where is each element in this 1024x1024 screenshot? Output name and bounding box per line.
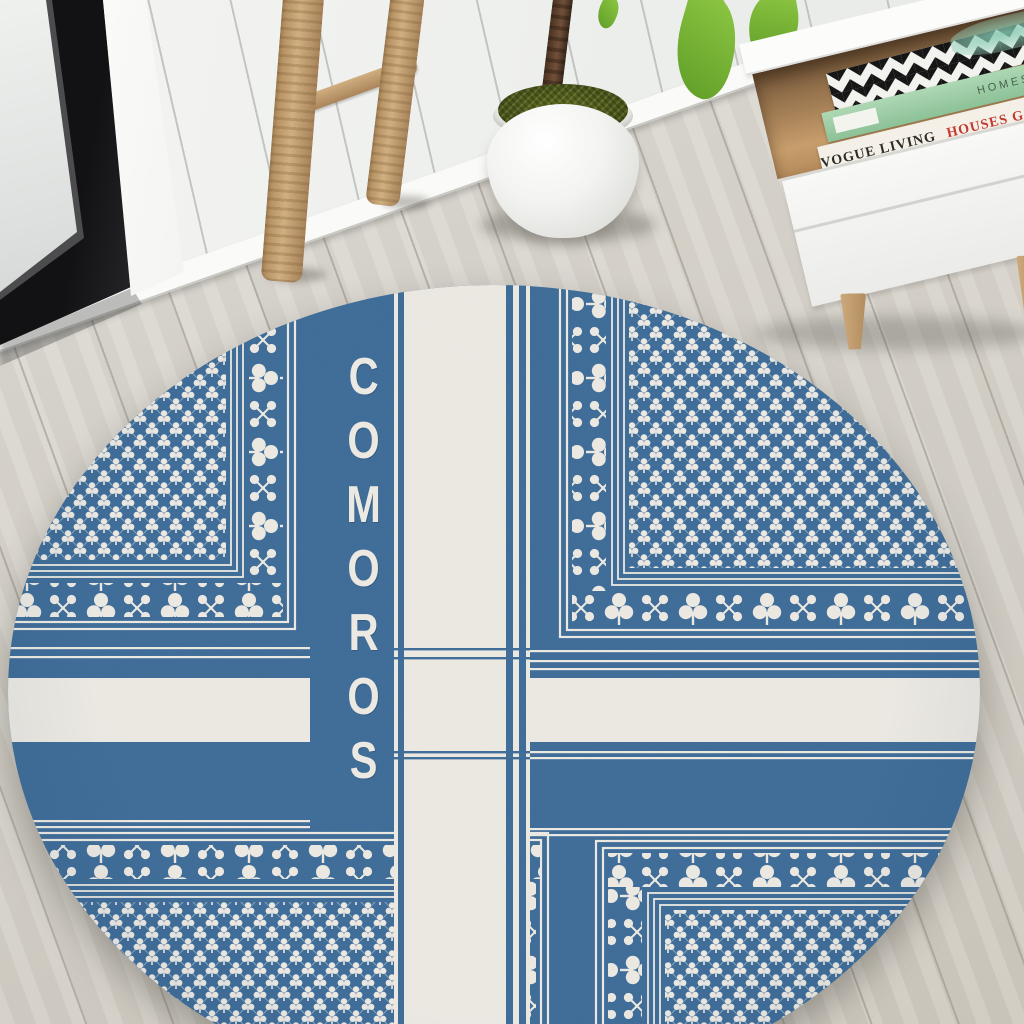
rug-comoros-label: COMOROS	[320, 348, 387, 788]
comoros-round-rug	[8, 285, 980, 1024]
room-scene: HOMESTORIES VOGUE LIVING HOUSES GARDENS …	[0, 0, 1024, 1024]
book-label	[833, 107, 880, 133]
nightstand-leg	[1016, 255, 1024, 314]
